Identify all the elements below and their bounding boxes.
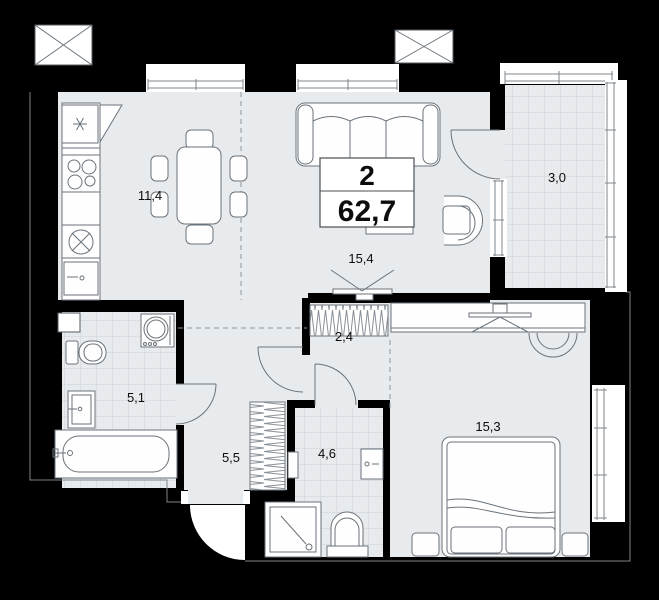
bathtub: [53, 430, 177, 478]
total-area: 62,7: [338, 195, 396, 228]
label-balcony-area: 3,0: [548, 170, 566, 185]
washing-machine-icon: [141, 314, 174, 347]
pillow: [506, 527, 555, 553]
label-kitchen-area: 11,4: [138, 188, 162, 203]
hall-wardrobe: [250, 402, 285, 490]
balcony-door-window: [490, 179, 507, 257]
balcony-glazing-right: [605, 80, 627, 292]
kitchen-window: [146, 64, 245, 92]
toilet-icon: [66, 341, 106, 364]
nightstand: [562, 533, 588, 556]
towel-radiator: [288, 452, 298, 478]
chair: [151, 156, 168, 181]
dining-table: [177, 147, 221, 224]
ventilation-shafts: [35, 25, 453, 65]
chair: [230, 192, 247, 217]
wash-basin: [361, 449, 383, 479]
nightstand: [412, 533, 439, 556]
label-shower-area: 4,6: [318, 446, 336, 461]
balcony-glazing-top: [500, 63, 618, 84]
bedroom-window: [592, 385, 625, 522]
balcony-tiles: [505, 85, 605, 288]
floor-plan-canvas: 2 62,7: [0, 0, 659, 600]
sofa: [296, 103, 440, 166]
chair: [186, 225, 213, 244]
chair: [186, 130, 213, 149]
round-sink-icon: [69, 230, 93, 254]
passage-floor: [184, 300, 308, 347]
wall-niche: [58, 313, 80, 332]
shower-tray: [265, 502, 321, 557]
rooms-count: 2: [359, 160, 375, 191]
fridge: [62, 105, 98, 143]
vent-shaft-icon: [35, 25, 92, 65]
living-room-window: [296, 64, 399, 92]
pillow: [451, 527, 502, 553]
apartment-info-box: 2 62,7: [320, 158, 414, 228]
chair: [230, 156, 247, 181]
kitchen-cabinet-tap: [64, 262, 98, 295]
label-bedroom-area: 15,3: [475, 419, 500, 434]
label-bathroom-area: 5,1: [127, 390, 145, 405]
label-hallway-area: 5,5: [222, 450, 240, 465]
double-bed: [442, 437, 560, 557]
label-wardrobe-area: 2,4: [335, 329, 353, 344]
label-living-area: 15,4: [348, 251, 373, 266]
floor-plan-svg: 2 62,7: [0, 0, 659, 600]
stove-burners: [62, 155, 100, 192]
vent-shaft-icon: [395, 30, 453, 63]
wash-basin: [68, 391, 95, 428]
